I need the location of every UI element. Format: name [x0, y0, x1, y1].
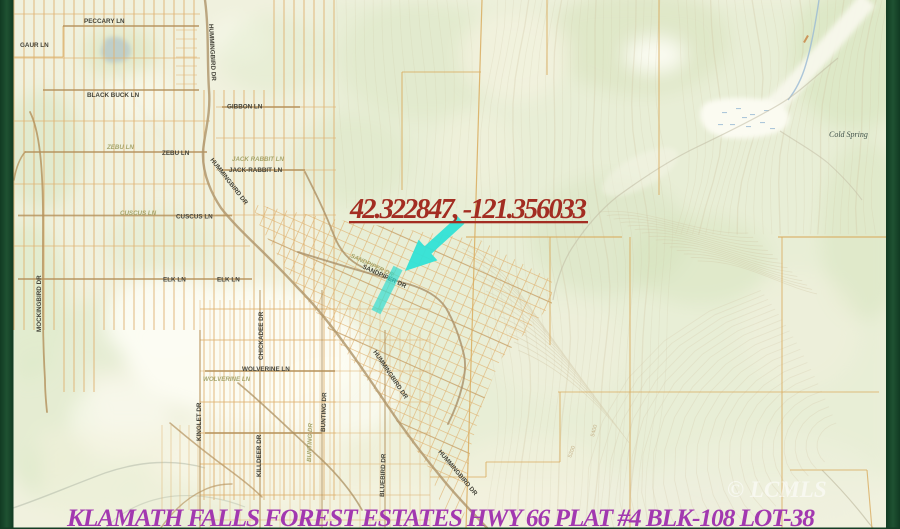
svg-text:© LCMLS: © LCMLS [727, 477, 827, 502]
svg-text:GIBBON LN: GIBBON LN [227, 104, 263, 111]
svg-text:BLACK BUCK LN: BLACK BUCK LN [87, 92, 140, 99]
svg-text:ZEBU LN: ZEBU LN [106, 144, 134, 151]
svg-text:BUNTING DR: BUNTING DR [306, 422, 314, 462]
svg-text:CUSCUS LN: CUSCUS LN [176, 214, 213, 221]
svg-text:ELK LN: ELK LN [163, 277, 186, 284]
svg-text:MOCKINGBIRD DR: MOCKINGBIRD DR [36, 275, 43, 332]
svg-text:WOLVERINE LN: WOLVERINE LN [242, 366, 290, 373]
svg-text:GAUR LN: GAUR LN [20, 42, 49, 49]
svg-text:42.322847, -121.356033: 42.322847, -121.356033 [349, 194, 587, 225]
svg-text:ZEBU LN: ZEBU LN [162, 150, 190, 157]
svg-text:KLAMATH FALLS FOREST ESTATES H: KLAMATH FALLS FOREST ESTATES HWY 66 PLAT… [66, 503, 815, 529]
svg-text:BUNTING DR: BUNTING DR [320, 392, 328, 432]
svg-text:CUSCUS LN: CUSCUS LN [120, 210, 157, 217]
svg-text:JACK-RABBIT LN: JACK-RABBIT LN [229, 167, 283, 174]
svg-text:WOLVERINE LN: WOLVERINE LN [203, 376, 251, 383]
svg-text:KILLDEER DR: KILLDEER DR [256, 434, 263, 477]
svg-text:KINGLET DR: KINGLET DR [196, 402, 203, 441]
svg-text:PECCARY LN: PECCARY LN [84, 18, 125, 25]
svg-text:JACK RABBIT LN: JACK RABBIT LN [232, 156, 284, 163]
svg-text:ELK LN: ELK LN [217, 277, 240, 284]
svg-text:Cold Spring: Cold Spring [829, 130, 868, 139]
svg-text:CHICKADEE DR: CHICKADEE DR [258, 311, 265, 360]
